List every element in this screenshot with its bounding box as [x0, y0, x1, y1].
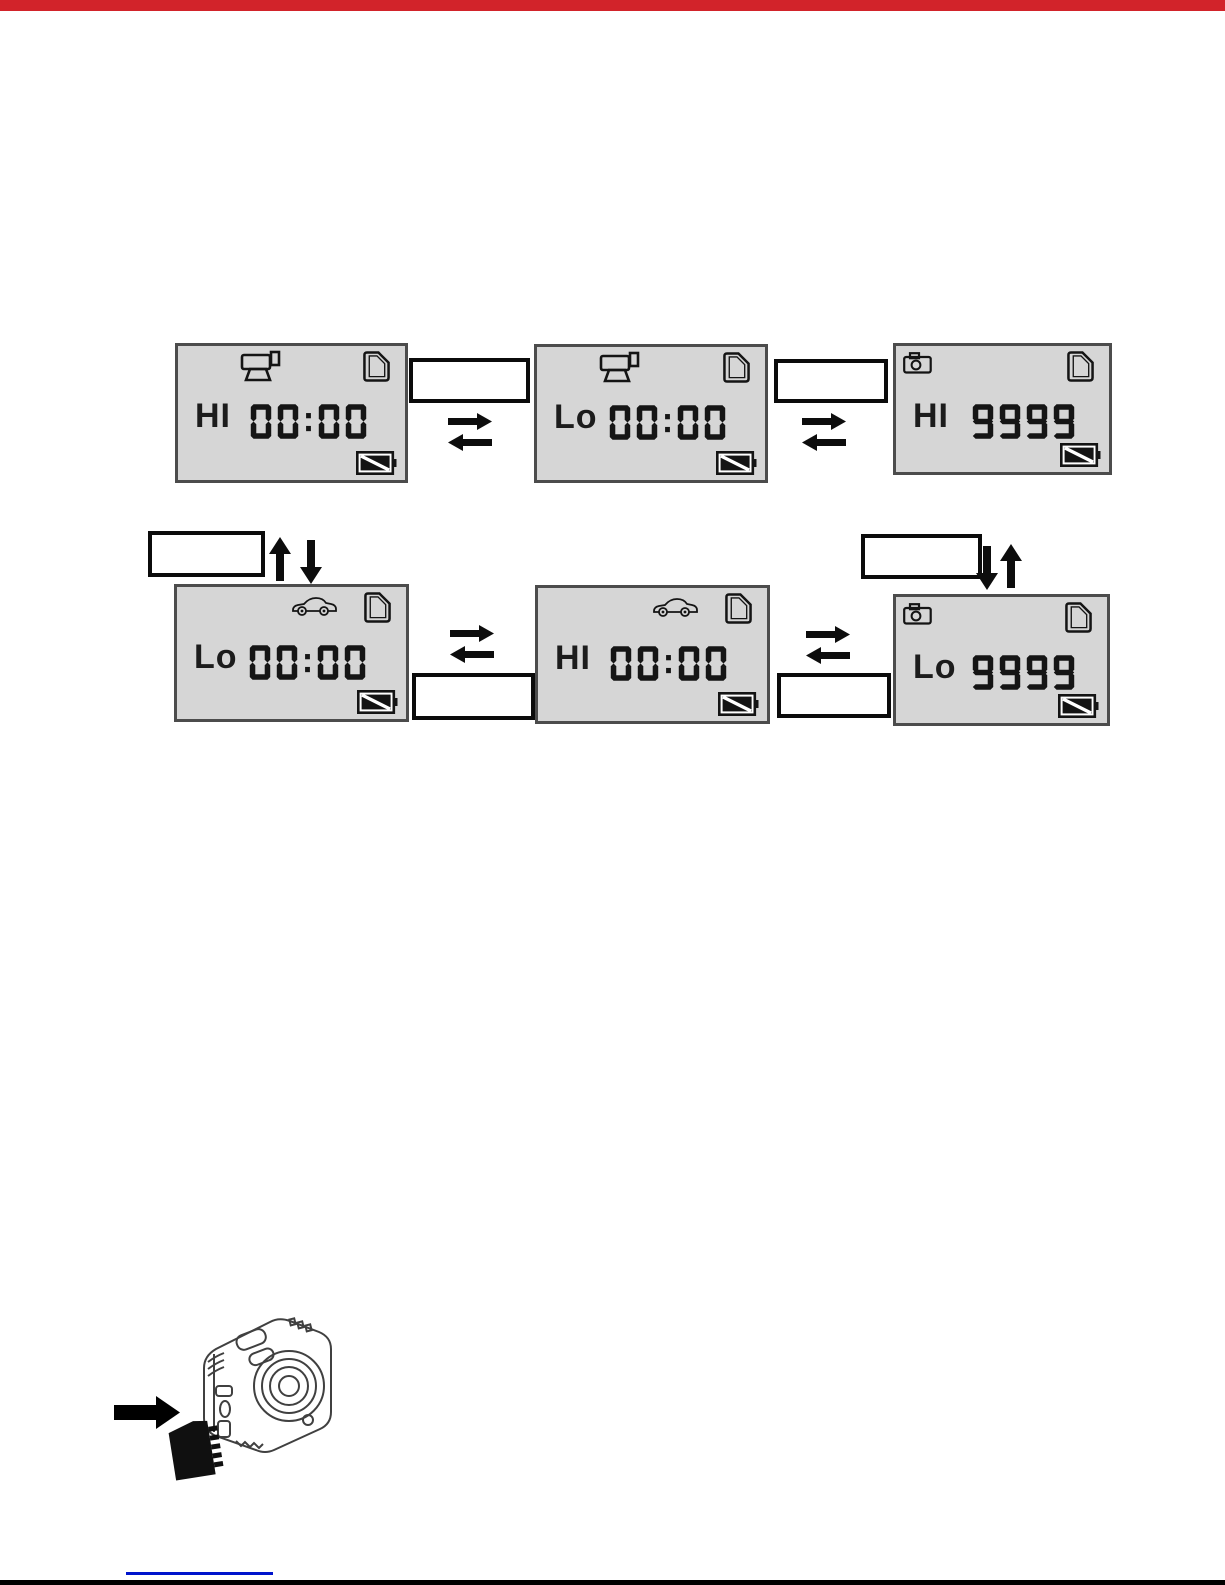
sd-card-icon	[363, 351, 390, 382]
mode-label: Lo	[913, 650, 957, 684]
battery-low-icon	[357, 690, 398, 714]
callout-box-4	[777, 673, 891, 718]
camera-body	[204, 1318, 331, 1452]
page-bottom-edge	[0, 1580, 1225, 1585]
battery-low-icon	[1060, 443, 1101, 467]
insert-arrow-icon	[114, 1396, 180, 1429]
down-arrow-icon	[976, 546, 998, 590]
mode-label: Lo	[194, 640, 238, 674]
counter-display	[972, 654, 1075, 691]
swap-arrows-icon	[449, 622, 495, 666]
battery-low-icon	[356, 451, 397, 475]
callout-box-left	[148, 531, 265, 577]
sd-card-icon	[1065, 602, 1092, 633]
callout-box-2	[774, 359, 888, 403]
callout-box-1	[409, 358, 530, 403]
up-arrow-icon	[1000, 544, 1022, 588]
swap-arrows-icon	[801, 410, 847, 454]
battery-low-icon	[716, 451, 757, 475]
sd-card-icon	[725, 593, 752, 624]
lcd-screen-video-hi: HI	[175, 343, 408, 483]
page-top-red-strip	[0, 0, 1225, 11]
mode-label: HI	[195, 399, 231, 433]
callout-box-right	[861, 534, 982, 579]
mode-label: HI	[913, 399, 949, 433]
car-icon	[290, 594, 338, 617]
mode-label: Lo	[554, 400, 598, 434]
mode-label: HI	[555, 641, 591, 675]
counter-display	[609, 404, 726, 441]
down-arrow-icon	[300, 540, 322, 584]
lcd-screen-video-lo: Lo	[534, 344, 768, 483]
video-camera-icon	[240, 350, 282, 382]
swap-arrows-icon	[447, 410, 493, 454]
callout-box-3	[412, 673, 535, 720]
sd-card-icon	[723, 352, 750, 383]
counter-display	[249, 644, 366, 681]
lcd-screen-car-lo: Lo	[174, 584, 409, 722]
photo-camera-icon	[903, 603, 932, 625]
sd-card-icon	[1067, 351, 1094, 382]
counter-display	[610, 645, 727, 682]
up-arrow-icon	[269, 537, 291, 581]
swap-arrows-icon	[805, 623, 851, 667]
lcd-screen-photo-hi: HI	[893, 343, 1112, 475]
battery-low-icon	[1058, 694, 1099, 718]
counter-display	[972, 403, 1075, 440]
manual-page: HI Lo HI Lo HI	[0, 0, 1225, 1585]
sd-card-icon	[364, 592, 391, 623]
lcd-screen-car-hi: HI	[535, 585, 770, 724]
hyperlink-underline[interactable]	[126, 1572, 273, 1575]
camera-illustration	[100, 1308, 360, 1488]
photo-camera-icon	[903, 352, 932, 374]
video-camera-icon	[599, 351, 641, 383]
counter-display	[250, 403, 367, 440]
battery-low-icon	[718, 692, 759, 716]
microsd-card	[167, 1418, 224, 1481]
lcd-screen-photo-lo: Lo	[893, 594, 1110, 726]
car-icon	[651, 595, 699, 618]
